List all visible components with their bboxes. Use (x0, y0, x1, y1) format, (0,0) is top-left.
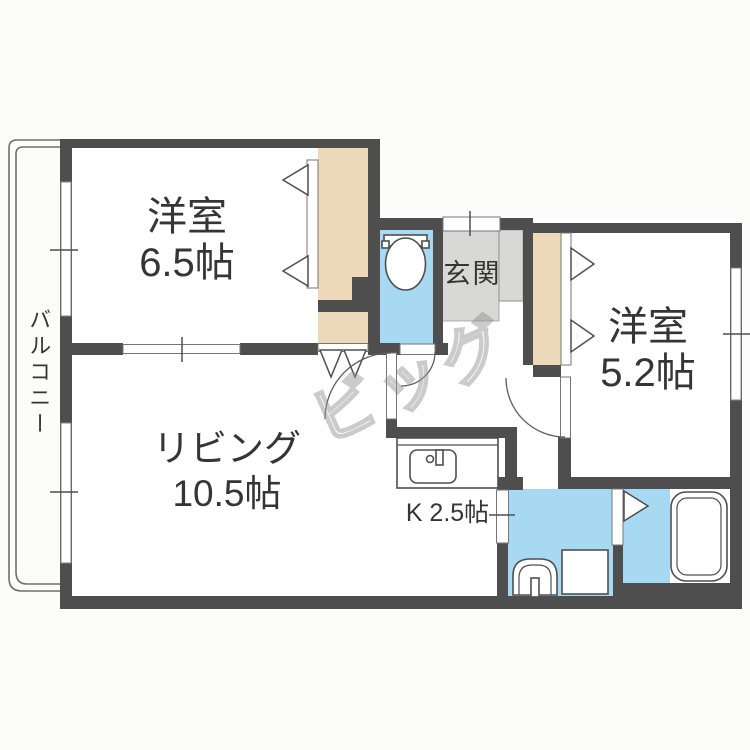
living-closet (318, 312, 368, 345)
living-window (61, 423, 71, 563)
bedroom2-label: 洋室 5.2帖 (548, 304, 748, 396)
bathtub-icon (671, 492, 727, 581)
balcony-label: バルコニー (26, 298, 51, 448)
vanity-sink-icon (513, 559, 557, 597)
entry-door-opening (443, 217, 500, 231)
bedroom1-closet (318, 148, 370, 277)
living-label: リビング 10.5帖 (127, 426, 327, 516)
bedroom1-label: 洋室 6.5帖 (87, 194, 287, 286)
bedroom1-size: 6.5帖 (87, 240, 287, 286)
bedroom2-name: 洋室 (548, 304, 748, 350)
floorplan: 洋室 6.5帖 洋室 5.2帖 リビング 10.5帖 玄関 K 2.5帖 バルコ… (0, 0, 750, 750)
living-name: リビング (127, 426, 327, 471)
bedroom1-name: 洋室 (87, 194, 287, 240)
entrance-label: 玄関 (420, 259, 525, 290)
bathroom-door (612, 489, 623, 545)
kitchen-label: K 2.5帖 (375, 499, 520, 528)
bedroom2-size: 5.2帖 (548, 350, 748, 396)
kitchen-sink-icon (397, 438, 498, 488)
washer-space (562, 550, 608, 594)
living-size: 10.5帖 (127, 471, 327, 516)
bedroom1-window (61, 182, 71, 316)
